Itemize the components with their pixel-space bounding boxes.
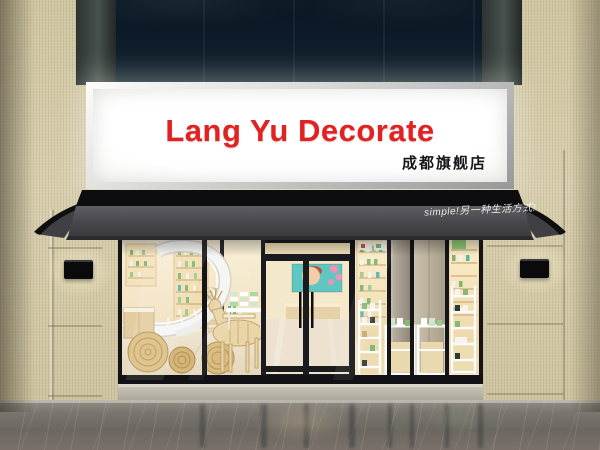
wall-seam: [487, 393, 563, 395]
wall-seam: [487, 323, 563, 325]
awning-lip: [66, 236, 534, 240]
beauty-poster: [292, 264, 343, 292]
wall-seam: [48, 395, 102, 397]
signboard: Lang Yu Decorate 成都旗舰店: [86, 82, 514, 189]
branch-label: 成都旗舰店: [402, 152, 487, 173]
reflection-bar: [388, 404, 392, 448]
wall-lamp-right: [520, 259, 549, 278]
facade-pillar-right: [482, 0, 522, 85]
upper-glass-panel: [115, 0, 483, 85]
reflection-bar: [410, 404, 414, 448]
sign-light-panel: Lang Yu Decorate 成都旗舰店: [93, 89, 507, 182]
corner-shadow-right: [570, 0, 600, 412]
display-cabinet-2: [418, 318, 446, 374]
shelf-light-reflection: [425, 404, 489, 434]
storefront-window: [118, 230, 483, 410]
pavement: [0, 400, 600, 450]
storefront-scene: Lang Yu Decorate 成都旗舰店 simple!另一种生活方式!: [0, 0, 600, 450]
reflection-bar: [200, 404, 205, 448]
brand-name: Lang Yu Decorate: [93, 113, 507, 149]
corner-shadow-left: [0, 0, 34, 412]
door-light-reflection: [252, 402, 352, 442]
wall-seam: [48, 325, 102, 327]
facade-pillar-left: [76, 0, 116, 85]
wall-lamp-left: [64, 260, 93, 279]
